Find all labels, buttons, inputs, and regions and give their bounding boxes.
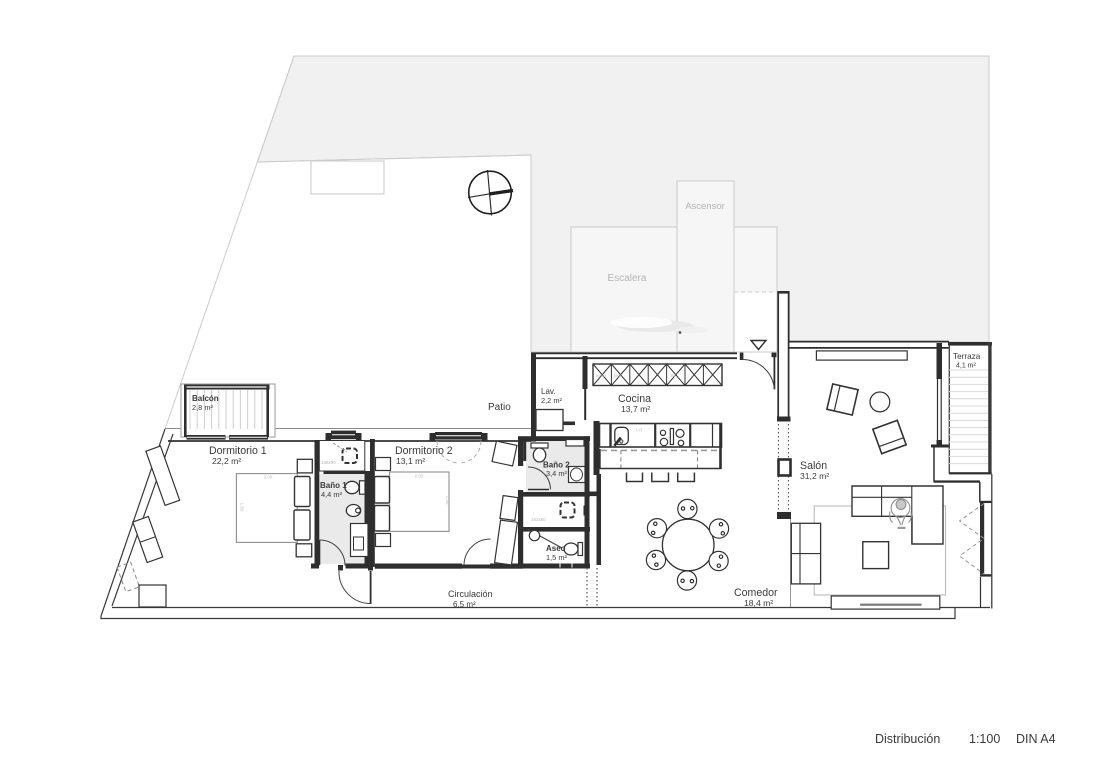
svg-text:Circulación: Circulación <box>448 589 493 599</box>
svg-text:18,4 m²: 18,4 m² <box>744 598 773 608</box>
svg-text:1.90: 1.90 <box>445 496 450 505</box>
svg-text:13,7 m²: 13,7 m² <box>621 404 650 414</box>
svg-text:1,5 m²: 1,5 m² <box>546 553 567 562</box>
svg-text:2,8 m²: 2,8 m² <box>192 403 213 412</box>
svg-text:Escalera: Escalera <box>608 273 647 284</box>
svg-text:DIN A4: DIN A4 <box>1016 732 1056 746</box>
svg-text:Patio: Patio <box>488 402 511 413</box>
svg-text:2.00: 2.00 <box>264 475 273 480</box>
svg-text:Terraza: Terraza <box>953 352 981 361</box>
svg-text:Ascensor: Ascensor <box>685 201 725 212</box>
svg-text:Aseo: Aseo <box>546 544 566 553</box>
svg-text:31,2 m²: 31,2 m² <box>800 471 829 481</box>
svg-text:slv: slv <box>670 373 676 378</box>
svg-text:3,4 m²: 3,4 m² <box>546 469 567 478</box>
svg-text:Distribución: Distribución <box>875 732 940 746</box>
svg-text:2.00: 2.00 <box>415 474 424 479</box>
svg-text:2,2 m²: 2,2 m² <box>541 396 562 405</box>
svg-text:6,5 m²: 6,5 m² <box>453 600 476 609</box>
svg-text:22,2 m²: 22,2 m² <box>212 456 241 466</box>
svg-text:4,4 m²: 4,4 m² <box>321 490 342 499</box>
svg-text:Lav.: Lav. <box>541 387 556 396</box>
svg-text:163x80: 163x80 <box>531 517 546 522</box>
svg-text:Lvj: Lvj <box>636 427 642 432</box>
svg-text:13,1 m²: 13,1 m² <box>396 456 425 466</box>
svg-text:limp: limp <box>614 373 623 378</box>
svg-text:1:100: 1:100 <box>969 732 1000 746</box>
svg-text:4,1 m²: 4,1 m² <box>956 363 977 370</box>
svg-text:avad: avad <box>596 373 606 378</box>
svg-text:138x90: 138x90 <box>321 460 336 465</box>
svg-text:Baño 1: Baño 1 <box>320 481 347 490</box>
svg-text:Balcón: Balcón <box>192 394 219 403</box>
svg-text:1.50: 1.50 <box>240 503 245 512</box>
